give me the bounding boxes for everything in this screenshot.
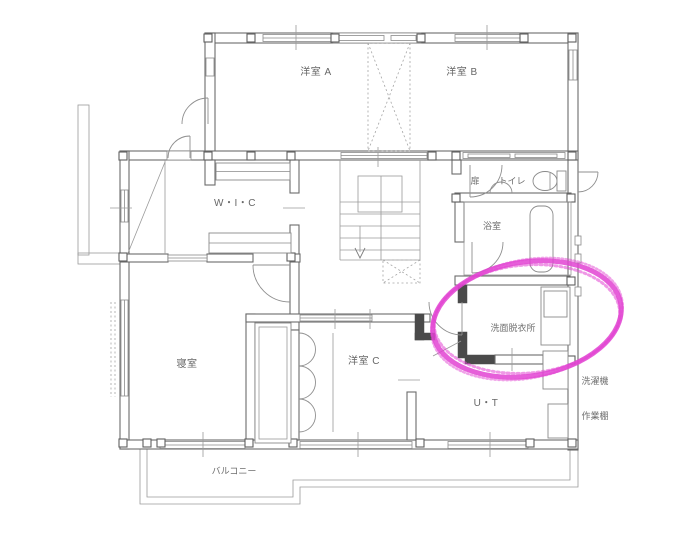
- tick-marks: [110, 25, 512, 457]
- door-toilet-exterior: [578, 172, 598, 192]
- door-terrace: [167, 136, 191, 160]
- void-triangle: [128, 160, 165, 254]
- closet-bifold-doors: [299, 333, 333, 432]
- vanity-counter: [541, 287, 570, 345]
- label-washer: 洗濯機: [581, 375, 608, 386]
- side-fence: [78, 105, 120, 264]
- bedroom-closet: [255, 323, 291, 443]
- label-room-c: 洋室 C: [348, 354, 380, 367]
- label-door: 扉: [470, 175, 479, 186]
- stair-void-dotted: [383, 260, 420, 283]
- floor-plan-svg: 洋室 A 洋室 B 扉 トイレ 浴室 W・I・C 洗面脱衣所 寝室 洋室 C U…: [0, 0, 680, 544]
- dotted-x-void: [368, 43, 410, 151]
- label-balcony: バルコニー: [212, 466, 257, 476]
- label-bath: 浴室: [483, 220, 501, 231]
- stairs-down-arrow: [355, 226, 365, 258]
- label-bedroom: 寝室: [177, 357, 198, 370]
- label-ut: U・T: [474, 398, 499, 409]
- walls: [120, 33, 578, 450]
- fixtures: [209, 163, 571, 443]
- label-room-b: 洋室 B: [446, 65, 477, 78]
- stairs: [340, 160, 420, 283]
- label-washroom: 洗面脱衣所: [490, 322, 535, 333]
- label-room-a: 洋室 A: [300, 65, 331, 78]
- toilet-fixture: [533, 171, 566, 191]
- highlight-ellipse: [420, 241, 634, 397]
- balcony-outline: [140, 449, 578, 504]
- door-room-a: [182, 98, 208, 124]
- work-shelf: [548, 404, 568, 438]
- label-work-shelf: 作業棚: [581, 410, 608, 421]
- floor-plan-image: 洋室 A 洋室 B 扉 トイレ 浴室 W・I・C 洗面脱衣所 寝室 洋室 C U…: [0, 0, 680, 544]
- windows: [111, 33, 581, 449]
- label-wic: W・I・C: [214, 198, 256, 209]
- label-toilet: トイレ: [498, 176, 525, 186]
- posts: [119, 34, 576, 447]
- door-bedroom: [253, 265, 290, 302]
